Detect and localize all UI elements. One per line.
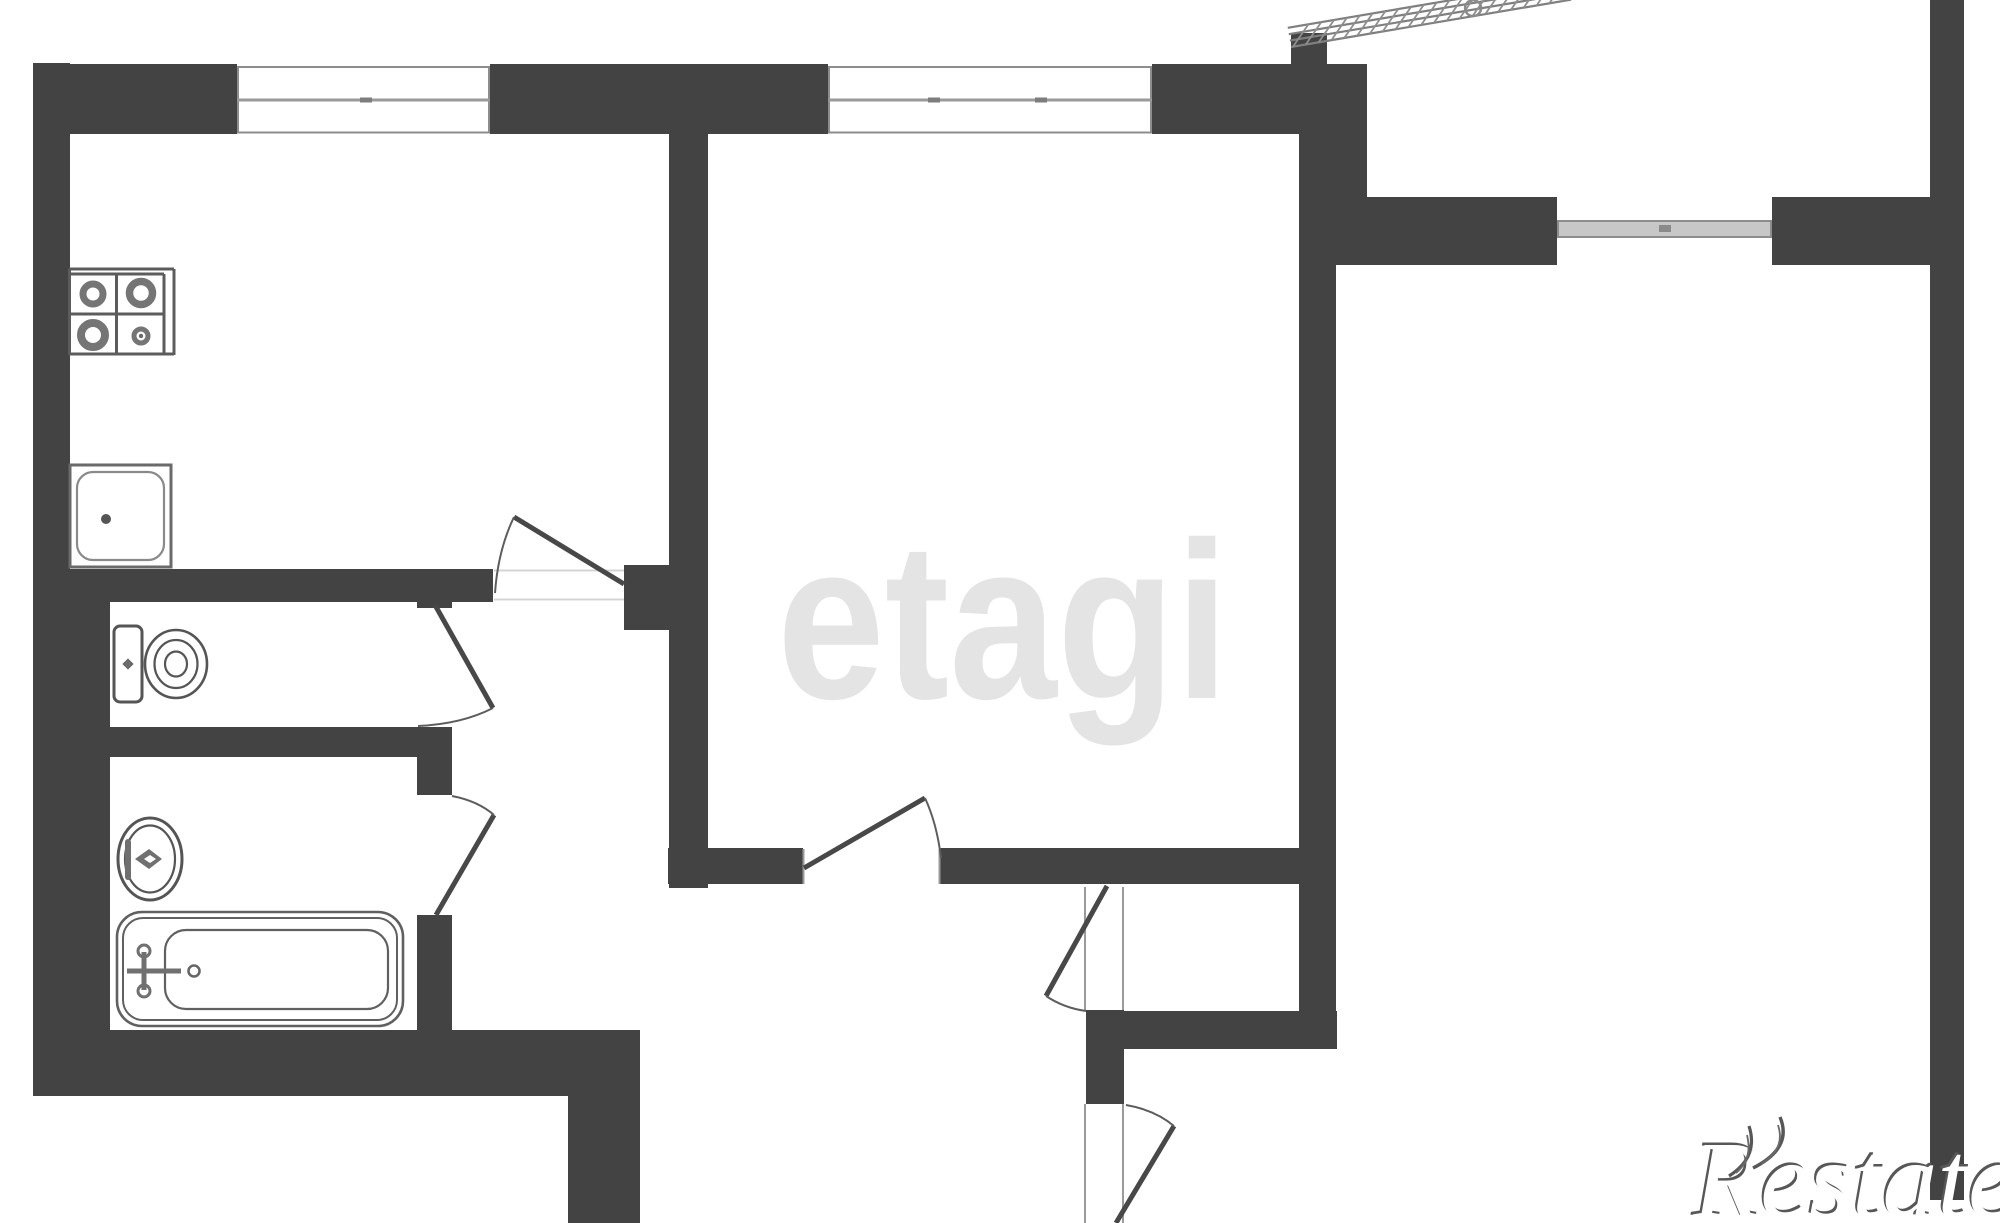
svg-text:etagi: etagi <box>777 496 1229 746</box>
